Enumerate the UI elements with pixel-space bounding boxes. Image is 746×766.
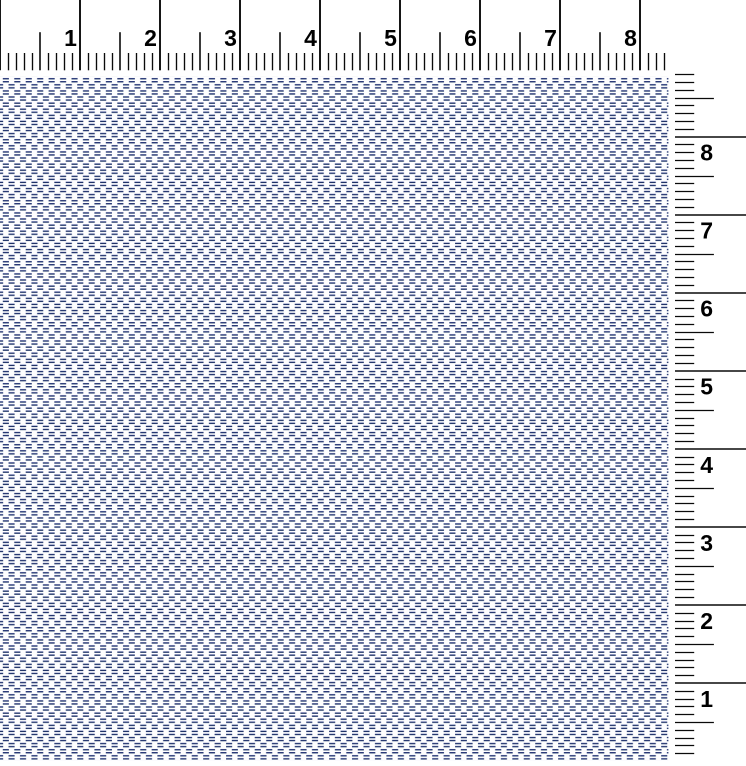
svg-text:8: 8 (700, 140, 713, 166)
svg-text:5: 5 (384, 25, 397, 51)
svg-text:1: 1 (64, 25, 77, 51)
svg-text:7: 7 (544, 25, 557, 51)
svg-text:2: 2 (700, 608, 713, 634)
svg-text:6: 6 (700, 296, 713, 322)
svg-text:1: 1 (700, 686, 713, 712)
svg-text:5: 5 (700, 374, 713, 400)
svg-text:7: 7 (700, 218, 713, 244)
svg-text:2: 2 (144, 25, 157, 51)
svg-text:3: 3 (224, 25, 237, 51)
svg-text:3: 3 (700, 530, 713, 556)
svg-text:4: 4 (700, 452, 713, 478)
svg-text:6: 6 (464, 25, 477, 51)
svg-text:8: 8 (624, 25, 637, 51)
svg-text:4: 4 (304, 25, 317, 51)
